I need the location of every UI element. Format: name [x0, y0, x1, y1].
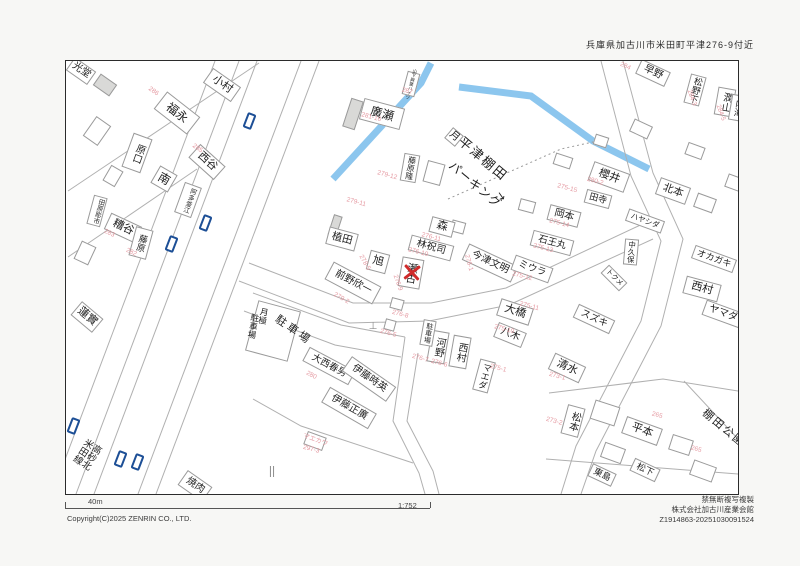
serial-number: Z1914863-20251030091524: [659, 515, 754, 525]
scale-ratio: 1:752: [398, 501, 417, 510]
scale-bar: [65, 508, 430, 509]
scanned-map-page: 兵庫県加古川市米田町平津276-9付近 光堂小村福永西谷原口南阿多釜江田原彫市糟…: [0, 0, 800, 566]
copyright-text: Copyright(C)2025 ZENRIN CO., LTD.: [67, 514, 191, 523]
map-label: ||: [269, 465, 275, 478]
legal-block: 禁無断複写複製 株式会社加古川産業会館 Z1914863-20251030091…: [659, 495, 754, 525]
map-label: 中久保: [626, 240, 636, 263]
road-line: [407, 353, 439, 494]
scale-bar-tick-right: [430, 502, 431, 508]
map-label: 西村: [453, 341, 467, 363]
target-marker: [401, 261, 423, 283]
road-line: [138, 61, 301, 494]
map-canvas: 光堂小村福永西谷原口南阿多釜江田原彫市糟谷藤原蓮實高砂北米田線廣瀬山下興業ハイツ…: [65, 60, 739, 495]
scale-bar-tick-left: [65, 502, 66, 508]
issuer-name: 株式会社加古川産業会館: [659, 505, 754, 515]
reproduction-notice: 禁無断複写複製: [659, 495, 754, 505]
map-label: ⊥: [369, 322, 378, 333]
map-location-header: 兵庫県加古川市米田町平津276-9付近: [586, 38, 754, 51]
map-label: ↘: [495, 191, 506, 204]
scale-bar-label: 40m: [88, 497, 103, 506]
